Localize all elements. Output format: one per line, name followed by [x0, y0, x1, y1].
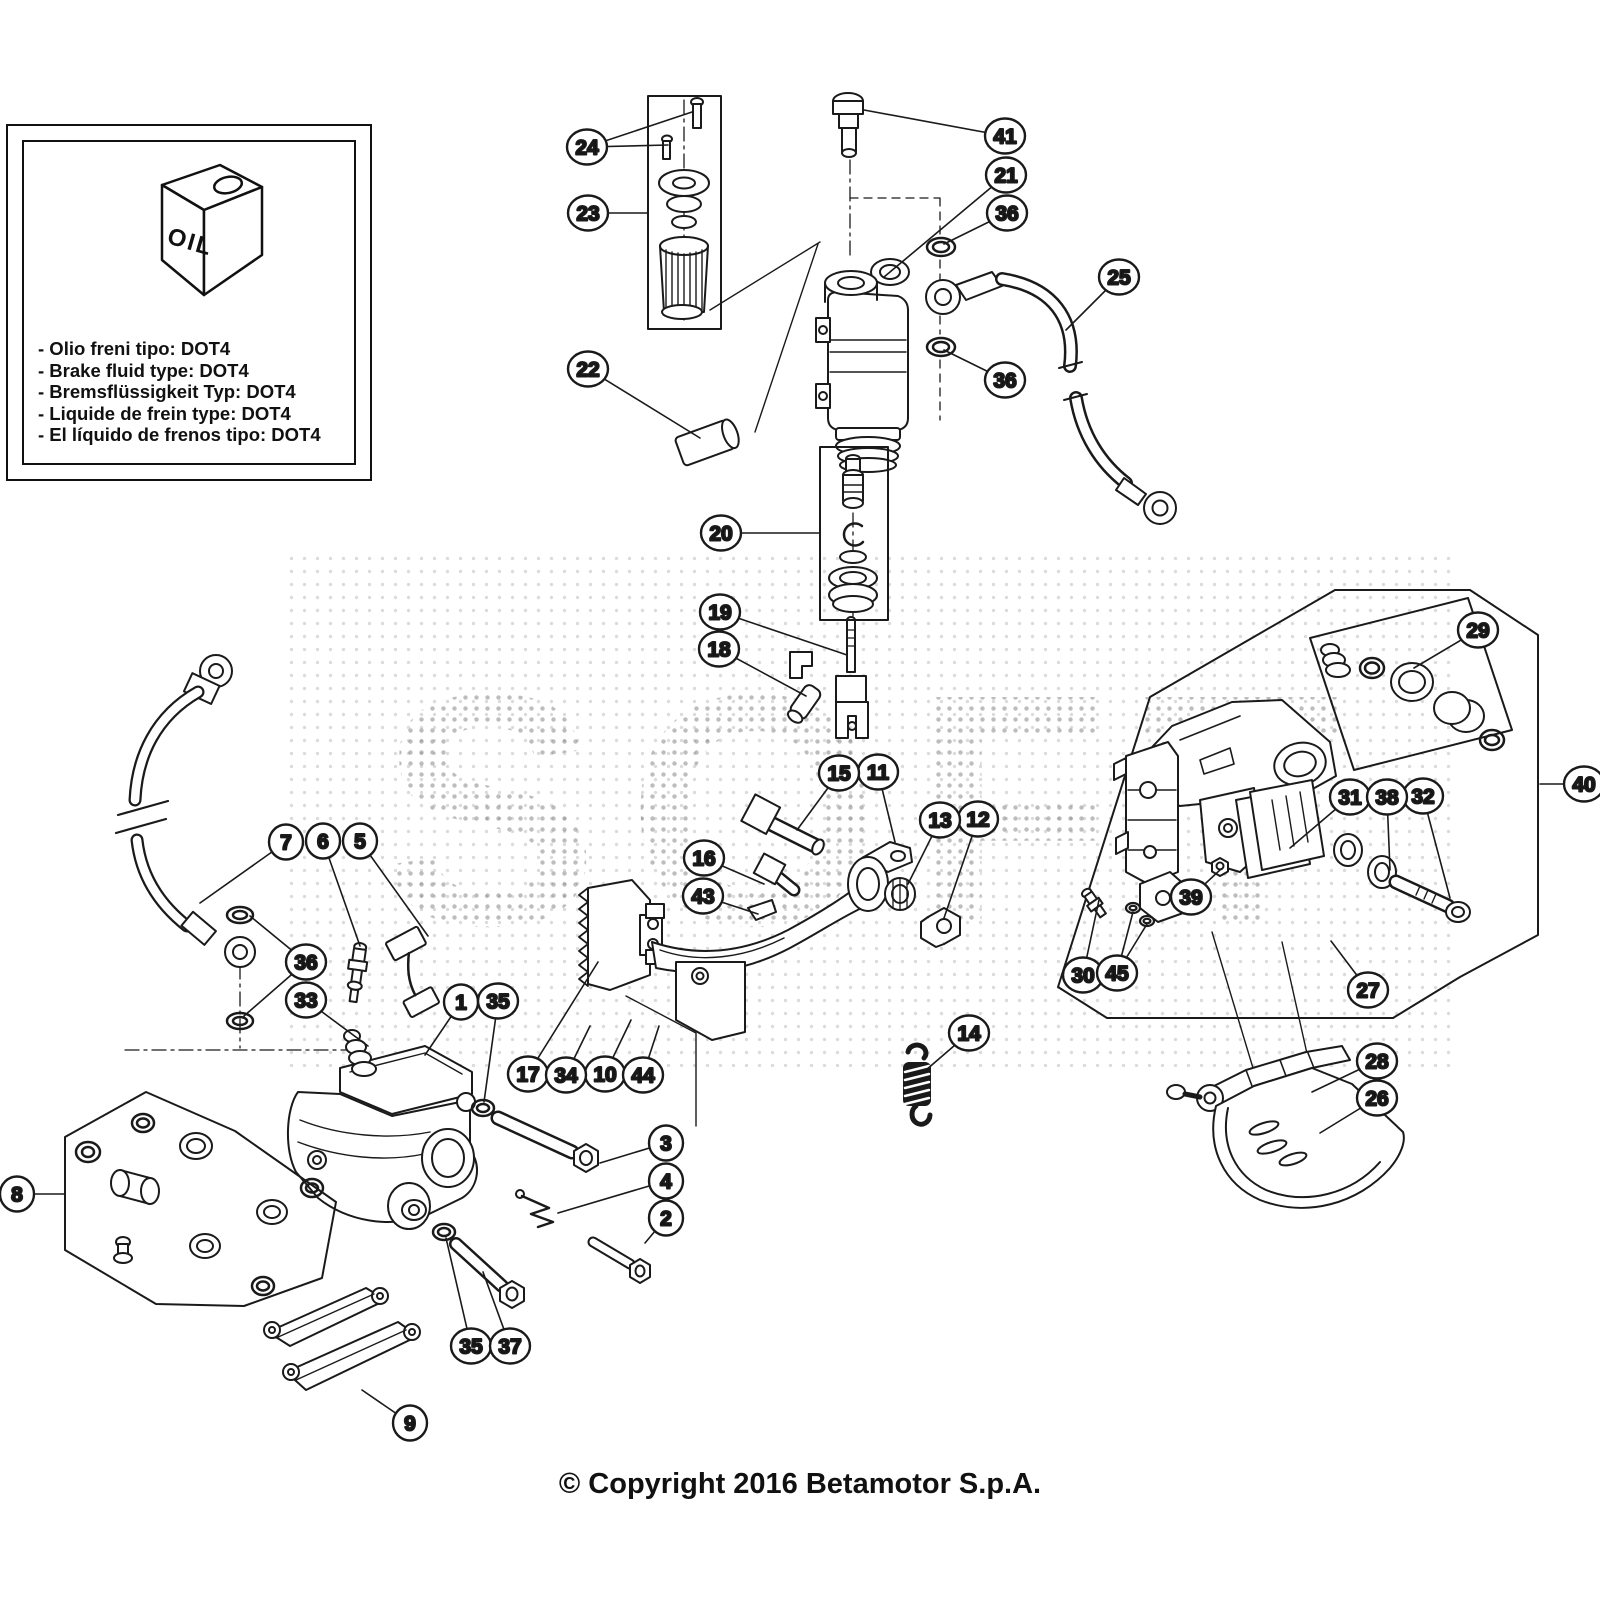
svg-text:23: 23 [576, 203, 599, 226]
svg-text:19: 19 [708, 602, 731, 625]
callout-43: 43 [683, 879, 723, 914]
callout-36: 36 [286, 945, 326, 980]
callout-20: 20 [701, 516, 741, 551]
callout-39: 39 [1171, 880, 1211, 915]
svg-text:5: 5 [354, 831, 366, 854]
reservoir-bellows [660, 237, 708, 319]
front-caliper [288, 1030, 477, 1229]
brake-pads [264, 1288, 420, 1390]
svg-text:10: 10 [593, 1064, 616, 1087]
info-box-inner-frame: OIL - Olio freni tipo: DOT4 - Brake flui… [22, 140, 356, 465]
callout-35: 35 [451, 1329, 491, 1364]
svg-text:9: 9 [404, 1413, 416, 1436]
callout-16: 16 [684, 841, 724, 876]
callout-18: 18 [699, 632, 739, 667]
callout-1: 1 [444, 985, 478, 1020]
svg-text:17: 17 [516, 1064, 539, 1087]
oil-can-icon: OIL [102, 150, 302, 330]
callout-24: 24 [567, 130, 607, 165]
svg-text:4: 4 [660, 1171, 672, 1194]
svg-text:36: 36 [995, 203, 1018, 226]
callout-31: 31 [1330, 780, 1370, 815]
svg-text:22: 22 [576, 359, 599, 382]
return-spring-14 [903, 1045, 931, 1124]
svg-text:36: 36 [294, 952, 317, 975]
brake-fluid-info-box: OIL - Olio freni tipo: DOT4 - Brake flui… [6, 124, 372, 481]
svg-text:25: 25 [1107, 267, 1131, 290]
callout-17: 17 [508, 1057, 548, 1092]
callout-36: 36 [987, 196, 1027, 231]
svg-text:30: 30 [1071, 965, 1094, 988]
callout-9: 9 [393, 1406, 427, 1441]
callout-34: 34 [546, 1058, 586, 1093]
svg-text:31: 31 [1338, 787, 1362, 810]
callout-6: 6 [306, 824, 340, 859]
svg-text:8: 8 [11, 1184, 23, 1207]
svg-text:3: 3 [660, 1133, 672, 1156]
svg-text:27: 27 [1356, 980, 1379, 1003]
pin-16 [754, 854, 794, 890]
svg-text:32: 32 [1411, 786, 1434, 809]
callout-23: 23 [568, 196, 608, 231]
svg-text:33: 33 [294, 990, 317, 1013]
svg-text:7: 7 [280, 832, 292, 855]
svg-text:40: 40 [1572, 774, 1595, 797]
reservoir-cap [659, 170, 709, 228]
svg-text:26: 26 [1365, 1088, 1388, 1111]
fluid-spec-line-fr: - Liquide de frein type: DOT4 [38, 403, 348, 425]
callout-7: 7 [269, 825, 303, 860]
svg-text:20: 20 [709, 523, 732, 546]
callout-45: 45 [1097, 956, 1137, 991]
callout-22: 22 [568, 352, 608, 387]
svg-text:14: 14 [957, 1023, 981, 1046]
svg-text:43: 43 [691, 886, 714, 909]
push-rod-and-clevis [785, 617, 868, 738]
bleed-valve-30 [1079, 886, 1109, 920]
callout-38: 38 [1367, 780, 1407, 815]
callout-15: 15 [819, 756, 859, 791]
rear-pistons-38-32 [1334, 834, 1396, 888]
svg-text:1: 1 [455, 992, 467, 1015]
svg-text:21: 21 [994, 165, 1018, 188]
callout-41: 41 [985, 119, 1025, 154]
callout-29: 29 [1458, 613, 1498, 648]
svg-text:38: 38 [1375, 787, 1399, 810]
callout-26: 26 [1357, 1081, 1397, 1116]
pedal-roller-13 [885, 878, 915, 910]
callout-21: 21 [986, 158, 1026, 193]
pad-clip-5 [375, 926, 454, 1017]
svg-text:28: 28 [1365, 1051, 1389, 1074]
piston-kit-box [820, 447, 888, 620]
svg-text:13: 13 [928, 810, 951, 833]
nut-39 [1212, 858, 1228, 876]
svg-text:36: 36 [993, 370, 1016, 393]
callout-35: 35 [478, 984, 518, 1019]
reservoir-screws [662, 98, 703, 159]
callout-27: 27 [1348, 973, 1388, 1008]
svg-text:35: 35 [459, 1336, 483, 1359]
callout-10: 10 [585, 1057, 625, 1092]
callout-37: 37 [490, 1329, 530, 1364]
callout-44: 44 [623, 1058, 663, 1093]
callout-14: 14 [949, 1016, 989, 1051]
svg-text:12: 12 [966, 809, 989, 832]
svg-text:16: 16 [692, 848, 715, 871]
fluid-spec-line-en: - Brake fluid type: DOT4 [38, 360, 348, 382]
callout-28: 28 [1357, 1044, 1397, 1079]
callout-13: 13 [920, 803, 960, 838]
svg-text:41: 41 [993, 126, 1017, 149]
copyright-notice: © Copyright 2016 Betamotor S.p.A. [0, 1468, 1600, 1501]
callout-40: 40 [1564, 767, 1600, 802]
leader-line-41 [864, 110, 1005, 136]
bleed-valve-6 [344, 942, 370, 1003]
callout-11: 11 [858, 755, 898, 790]
callout-36: 36 [985, 363, 1025, 398]
callout-8: 8 [0, 1177, 34, 1212]
svg-text:34: 34 [554, 1065, 578, 1088]
svg-text:11: 11 [867, 762, 890, 785]
callout-2: 2 [649, 1201, 683, 1236]
svg-text:35: 35 [486, 991, 510, 1014]
pump-cap [833, 93, 863, 157]
front-brake-hose [116, 655, 255, 967]
svg-text:24: 24 [575, 137, 599, 160]
svg-text:15: 15 [827, 763, 851, 786]
svg-text:18: 18 [707, 639, 731, 662]
callout-4: 4 [649, 1164, 683, 1199]
pivot-pin-15 [741, 794, 826, 856]
caliper-axle-27 [1396, 882, 1470, 922]
fluid-spec-lines: - Olio freni tipo: DOT4 - Brake fluid ty… [38, 338, 348, 446]
callout-12: 12 [958, 802, 998, 837]
parts-diagram-page: SOFT [0, 0, 1600, 1600]
svg-text:39: 39 [1179, 887, 1202, 910]
fluid-spec-line-de: - Bremsflüssigkeit Typ: DOT4 [38, 381, 348, 403]
pedal-nut-12 [921, 908, 960, 947]
callout-25: 25 [1099, 260, 1139, 295]
svg-text:6: 6 [317, 831, 329, 854]
fluid-spec-line-it: - Olio freni tipo: DOT4 [38, 338, 348, 360]
callout-32: 32 [1403, 779, 1443, 814]
svg-text:44: 44 [631, 1065, 655, 1088]
rear-brake-hose [1002, 279, 1176, 524]
svg-text:45: 45 [1105, 963, 1129, 986]
seal-kit-29 [1321, 644, 1504, 750]
leader-line-21 [884, 175, 1006, 277]
svg-text:37: 37 [498, 1336, 521, 1359]
rear-caliper-group [1058, 590, 1538, 1018]
clip-43 [748, 900, 776, 920]
svg-text:2: 2 [660, 1208, 672, 1231]
callout-3: 3 [649, 1126, 683, 1161]
callout-5: 5 [343, 824, 377, 859]
spacer-22 [674, 417, 742, 466]
callout-19: 19 [700, 595, 740, 630]
fluid-spec-line-es: - El líquido de frenos tipo: DOT4 [38, 424, 348, 446]
callout-33: 33 [286, 983, 326, 1018]
svg-text:29: 29 [1466, 620, 1489, 643]
